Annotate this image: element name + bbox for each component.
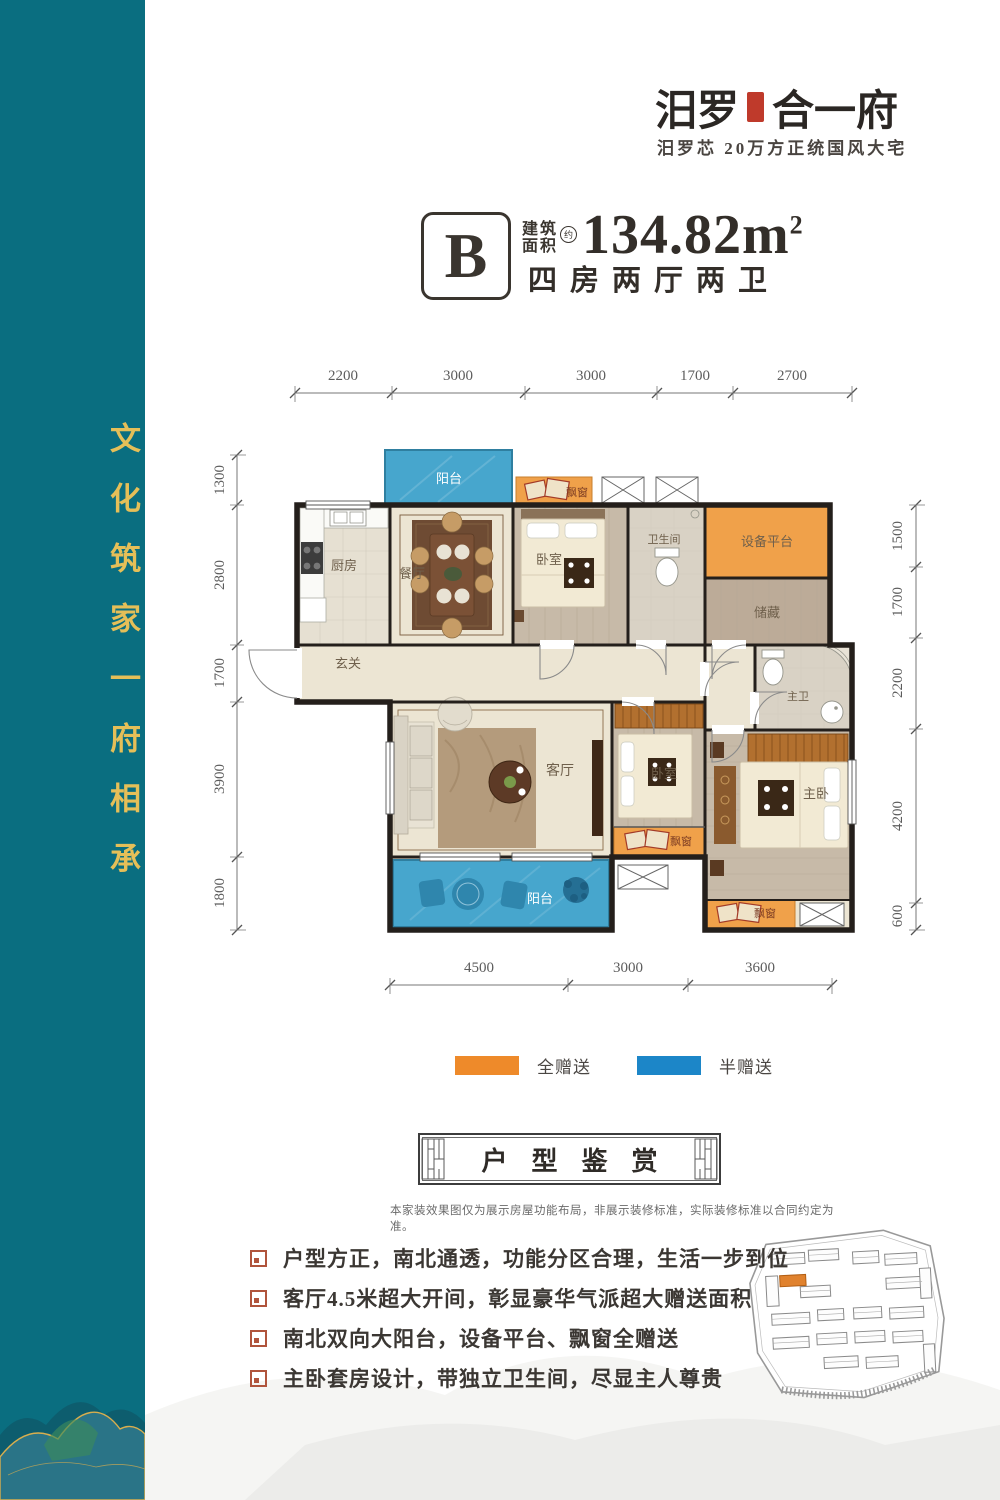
feature-bullet-icon (250, 1250, 267, 1267)
label-kitchen: 厨房 (331, 558, 357, 573)
label-balcony-top: 阳台 (436, 471, 462, 486)
svg-text:1700: 1700 (890, 587, 906, 617)
feature-text: 客厅4.5米超大开间，彰显豪华气派超大赠送面积 (283, 1283, 752, 1313)
feature-text: 南北双向大阳台，设备平台、飘窗全赠送 (283, 1323, 679, 1353)
legend-full-gift-swatch (455, 1056, 519, 1075)
svg-text:1800: 1800 (212, 878, 228, 908)
label-bay-mid: 飘窗 (670, 834, 692, 848)
feature-text: 主卧套房设计，带独立卫生间，尽显主人尊贵 (283, 1363, 723, 1393)
label-entry: 玄关 (335, 656, 361, 671)
feature-text: 户型方正，南北通透，功能分区合理，生活一步到位 (283, 1243, 789, 1273)
feature-bullet-icon (250, 1330, 267, 1347)
unit-type-badge: B (421, 212, 511, 300)
unit-layout-text: 四房两厅两卫 (528, 257, 780, 299)
feature-item: 户型方正，南北通透，功能分区合理，生活一步到位 (250, 1238, 789, 1278)
svg-text:2200: 2200 (890, 668, 906, 698)
approx-circle-icon: 约 (560, 226, 577, 243)
label-dining: 餐厅 (399, 566, 425, 581)
poster-root: 文化筑家一府相承 汨罗 合一府 汨罗芯 20万方正统国风大宅 B 建筑 面积 约… (0, 0, 1000, 1500)
brand-seal-icon (747, 92, 764, 122)
brand-logo: 汨罗 合一府 (655, 82, 955, 132)
svg-text:2800: 2800 (212, 560, 228, 590)
label-master: 主卧 (803, 786, 829, 801)
svg-text:1500: 1500 (890, 521, 906, 551)
section-banner: 户型鉴赏 (418, 1133, 721, 1185)
sidebar-band: 文化筑家一府相承 (0, 0, 145, 1500)
legend-full-gift-label: 全赠送 (537, 1053, 591, 1078)
floorplan: 阳台 厨房 餐厅 飘窗 卧室 卫生间 设备平台 储藏 玄关 客厅 阳台 卧室 飘… (200, 345, 960, 1025)
brand-tagline: 汨罗芯 20万方正统国风大宅 (657, 134, 957, 159)
feature-bullet-icon (250, 1290, 267, 1307)
feature-item: 主卧套房设计，带独立卫生间，尽显主人尊贵 (250, 1358, 789, 1398)
brand-logo-left: 汨罗 (655, 77, 739, 138)
area-exponent: 2 (790, 210, 804, 239)
feature-item: 南北双向大阳台，设备平台、飘窗全赠送 (250, 1318, 789, 1358)
svg-text:2200: 2200 (328, 368, 358, 384)
floorplan-svg: 阳台 厨房 餐厅 飘窗 卧室 卫生间 设备平台 储藏 玄关 客厅 阳台 卧室 飘… (200, 345, 960, 1020)
feature-item: 客厅4.5米超大开间，彰显豪华气派超大赠送面积 (250, 1278, 789, 1318)
svg-text:4200: 4200 (890, 801, 906, 831)
label-living: 客厅 (546, 762, 574, 779)
sidebar-mountain-illustration (0, 1335, 145, 1500)
label-balcony-bottom: 阳台 (527, 891, 553, 906)
svg-text:3900: 3900 (212, 764, 228, 794)
svg-text:2700: 2700 (777, 368, 807, 384)
sidebar-slogan: 文化筑家一府相承 (0, 402, 145, 922)
svg-text:4500: 4500 (464, 960, 494, 976)
label-bedroom-top: 卧室 (536, 552, 562, 567)
label-bay-top: 飘窗 (566, 485, 588, 499)
area-prefix-top: 建筑 (522, 221, 558, 238)
svg-text:3000: 3000 (443, 368, 473, 384)
label-equipment: 设备平台 (741, 534, 793, 549)
svg-text:1300: 1300 (212, 465, 228, 495)
svg-text:1700: 1700 (212, 658, 228, 688)
svg-text:600: 600 (890, 905, 906, 928)
bedroom-mid-furniture (615, 704, 703, 818)
svg-text:3600: 3600 (745, 960, 775, 976)
area-prefix-bottom: 面积 (522, 238, 558, 255)
feature-bullet-icon (250, 1370, 267, 1387)
label-bedroom-mid: 卧室 (651, 766, 677, 781)
label-bay-master: 飘窗 (754, 906, 776, 920)
legend-half-gift-label: 半赠送 (719, 1053, 773, 1078)
legend-half-gift-swatch (637, 1056, 701, 1075)
svg-text:3000: 3000 (576, 368, 606, 384)
label-storage: 储藏 (754, 605, 780, 620)
banner-lattice-right-icon (693, 1137, 719, 1181)
svg-text:1700: 1700 (680, 368, 710, 384)
banner-lattice-left-icon (420, 1137, 446, 1181)
label-bathroom: 卫生间 (648, 532, 681, 546)
plan-legend: 全赠送 半赠送 (455, 1053, 801, 1078)
brand-logo-right: 合一府 (772, 77, 898, 138)
section-title: 户型鉴赏 (446, 1141, 693, 1178)
area-prefix: 建筑 面积 (522, 221, 558, 255)
svg-text:3000: 3000 (613, 960, 643, 976)
label-master-bath: 主卫 (787, 690, 809, 703)
feature-list: 户型方正，南北通透，功能分区合理，生活一步到位 客厅4.5米超大开间，彰显豪华气… (250, 1238, 789, 1398)
